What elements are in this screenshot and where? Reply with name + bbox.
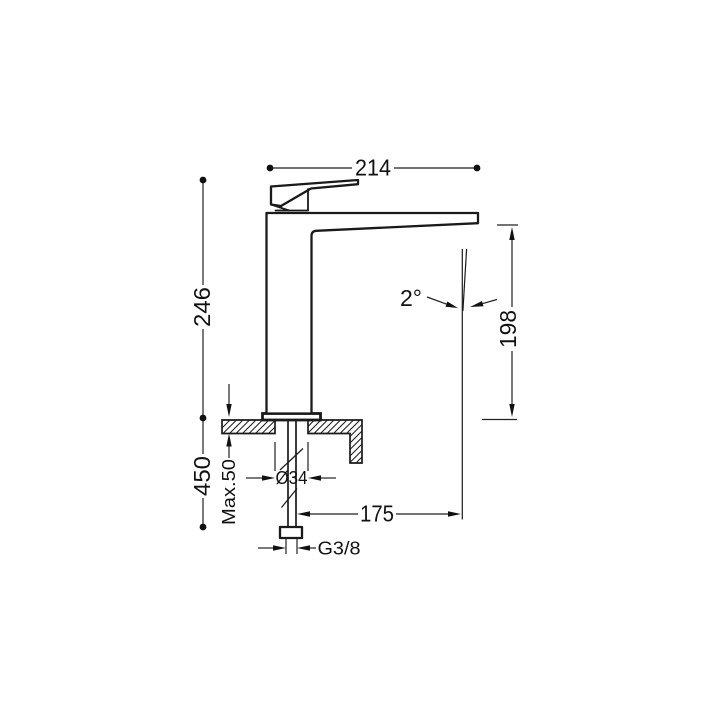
leader-line-left — [427, 297, 446, 304]
arrowhead-left — [297, 545, 310, 550]
dim-left-vertical: 246 450 — [189, 177, 215, 531]
dim-outlet-height: 198 — [482, 225, 521, 420]
dim-outlet-height-label: 198 — [495, 310, 521, 348]
dim-supply-thread-label: G3/8 — [318, 539, 361, 559]
arrowhead-down — [509, 404, 514, 417]
arrowhead-right — [262, 475, 275, 480]
hose-connector — [280, 527, 302, 538]
pipe-break-mark-upper — [280, 449, 303, 471]
dim-stream-angle: 2° — [400, 285, 497, 311]
leader-line-right — [483, 300, 497, 304]
dim-dot — [200, 524, 207, 531]
arrowhead-left — [297, 511, 310, 516]
dim-dot — [200, 177, 207, 184]
pipe-break-mark-lower — [282, 489, 298, 508]
dim-spout-reach-label: 175 — [360, 501, 394, 527]
lever-handle — [271, 180, 358, 206]
dim-length-below-deck-label: 450 — [189, 456, 215, 496]
dim-overall-width-label: 214 — [355, 155, 391, 181]
arrowhead-right — [448, 511, 461, 516]
dim-overall-width: 214 — [267, 155, 481, 181]
arrowhead-left — [308, 475, 321, 480]
arrowhead-left — [470, 301, 484, 307]
arrowhead-down — [226, 404, 231, 417]
arrowhead-right — [273, 545, 286, 550]
dim-stream-angle-label: 2° — [400, 285, 422, 311]
dim-height-above-deck-label: 246 — [189, 287, 215, 327]
dim-dot — [200, 415, 207, 422]
arrowhead-right — [446, 302, 459, 309]
dim-supply-thread: G3/8 — [258, 538, 361, 559]
deck-hatch-left — [222, 420, 275, 434]
arrowhead-up — [226, 434, 231, 447]
dim-spout-reach: 175 — [297, 501, 461, 527]
technical-drawing-canvas: 214 246 450 198 2° Max.50 — [0, 0, 720, 720]
faucet-body-and-spout — [267, 213, 479, 414]
dim-max-deck-thickness: Max.50 — [219, 384, 239, 525]
faucet-outline-group — [263, 180, 479, 420]
counter-section-group — [222, 420, 362, 463]
dim-hole-diameter: Ø34 — [246, 442, 336, 488]
deck-hatch-right — [308, 420, 362, 463]
dim-max-deck-thickness-label: Max.50 — [219, 459, 239, 525]
water-stream-group — [462, 249, 466, 520]
stream-angled-line — [463, 249, 467, 311]
arrowhead-up — [509, 227, 514, 240]
dim-dot — [267, 165, 274, 172]
dim-dot — [474, 165, 481, 172]
dim-hole-diameter-label: Ø34 — [276, 468, 308, 488]
technical-drawing-page: 214 246 450 198 2° Max.50 — [0, 0, 720, 720]
